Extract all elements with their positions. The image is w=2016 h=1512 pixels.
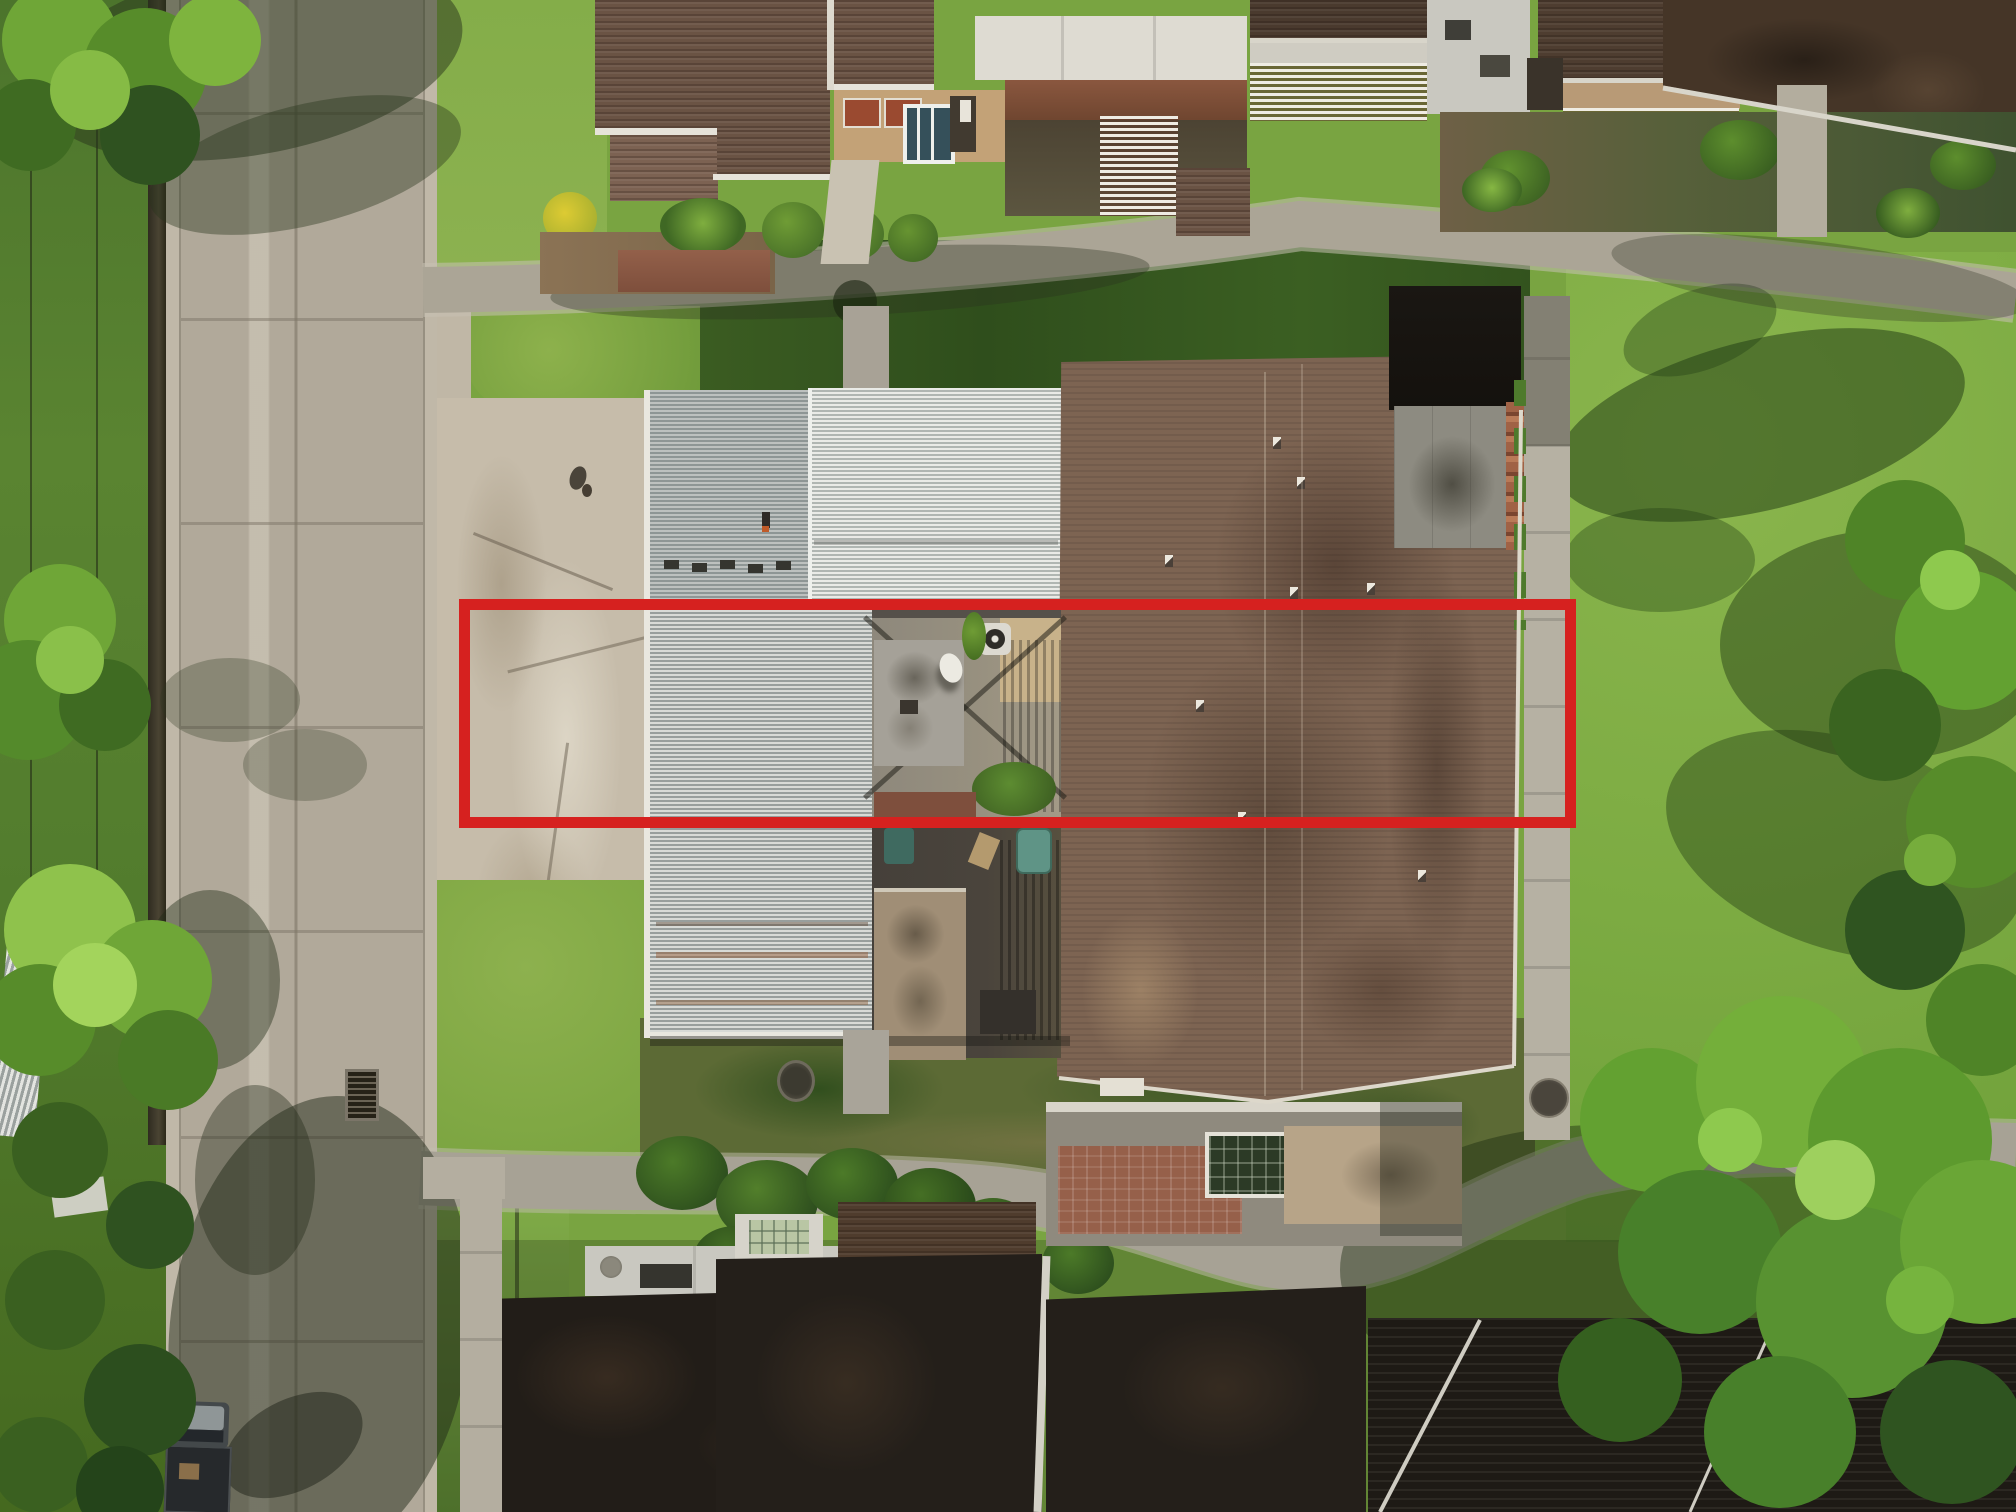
gutter — [713, 174, 833, 180]
chimney-tower-black — [1389, 286, 1521, 410]
bed-bush — [1930, 140, 1996, 190]
teal-car — [1016, 828, 1052, 874]
street-joint — [166, 318, 437, 321]
palm-plant — [1462, 168, 1522, 212]
front-bush — [762, 202, 824, 258]
grass-southwest — [437, 880, 659, 1170]
wood-fence — [148, 0, 166, 1145]
skylight-green-pane — [749, 1220, 809, 1254]
lounge-chair — [843, 98, 881, 128]
roof-vent — [1367, 583, 1375, 595]
street-joint — [166, 522, 437, 525]
street-joint — [166, 726, 437, 729]
roof-vent-figure-cap — [762, 526, 769, 532]
house-roof-topleft — [595, 0, 830, 132]
house-roof-mid-extension — [717, 130, 830, 176]
pickup-truck — [156, 1378, 261, 1512]
roof-vent-dash — [720, 560, 735, 569]
solar-panel — [640, 1264, 692, 1288]
house-roof-2 — [834, 0, 934, 86]
storm-drain — [345, 1069, 379, 1121]
left-garden-strip — [0, 0, 168, 1512]
tr-roof-a — [1250, 0, 1427, 40]
bed-bush — [1700, 120, 1780, 180]
rust-streak — [656, 922, 868, 926]
truck-cargo — [179, 1463, 200, 1480]
truck-roof — [172, 1405, 225, 1431]
rooftop-unit — [1480, 55, 1510, 77]
street-curb-left — [166, 0, 181, 1512]
glass-table-dark — [980, 990, 1036, 1034]
tr-white-band — [1250, 43, 1427, 63]
rooftop-ac — [600, 1256, 622, 1278]
skylight-grid-dark — [1205, 1132, 1289, 1198]
path-bush — [636, 1136, 728, 1210]
street-joint — [166, 930, 437, 933]
roof-streak — [814, 540, 1058, 545]
building-front-walk — [843, 306, 889, 394]
dog — [582, 484, 592, 497]
east-sidewalk-shade — [1524, 296, 1570, 446]
truck-windshield — [171, 1429, 223, 1443]
gutter — [595, 128, 717, 135]
house-lower-roof — [610, 135, 718, 201]
tr-flat-roof — [1427, 0, 1530, 114]
power-line — [30, 0, 32, 980]
bay-window — [903, 104, 955, 164]
grass-manhole — [777, 1060, 815, 1102]
rust-streak — [656, 952, 868, 958]
street-joint — [166, 1136, 437, 1139]
brick-bed-edge — [618, 250, 770, 292]
manhole-east-walk — [1529, 1078, 1569, 1118]
brown-band-central — [838, 1202, 1036, 1260]
courtyard-shade-right — [1380, 1102, 1462, 1236]
roof-vent-dash — [776, 561, 791, 570]
roof-divider — [827, 0, 834, 90]
stub-walk — [843, 1030, 889, 1114]
rust-streak — [656, 1000, 868, 1005]
tr-vertical-walk — [1777, 85, 1827, 237]
roof-vent-dash — [692, 563, 707, 572]
palm-plant — [660, 198, 746, 254]
pergola-slats — [1100, 116, 1178, 216]
palm-plant — [1876, 188, 1940, 238]
corrugated-roof-northeast — [812, 388, 1061, 608]
mini-brown-roof — [1176, 168, 1250, 236]
street-joint — [166, 112, 437, 115]
black-roof-central — [716, 1254, 1042, 1512]
black-roof-right — [1046, 1286, 1366, 1512]
chimney-cap-gray — [1394, 406, 1510, 548]
dark-doorway — [1527, 58, 1563, 110]
aerial-photo — [0, 0, 2016, 1512]
roof-vent — [1418, 870, 1426, 882]
roof-vent — [1165, 555, 1173, 567]
east-lawn — [1566, 252, 2016, 1242]
street-joint — [166, 1340, 437, 1343]
roof-vent — [1290, 587, 1298, 599]
roof-vent — [1273, 437, 1281, 449]
grass-tufts — [1514, 380, 1526, 630]
teal-bin — [884, 828, 914, 864]
entry-door — [960, 100, 971, 122]
property-outline-annotation — [459, 599, 1576, 828]
black-roof-farright — [1368, 1318, 2016, 1512]
street — [166, 0, 437, 1512]
vertical-walk — [460, 1198, 502, 1512]
power-line — [96, 0, 98, 980]
pergola-slats — [1250, 63, 1427, 121]
garage-flat-roof — [975, 16, 1247, 80]
front-bush — [888, 214, 938, 262]
t-sidewalk — [423, 1157, 505, 1199]
rooftop-unit — [1445, 20, 1471, 40]
roof-vent — [1297, 477, 1305, 489]
roof-vent-dash — [664, 560, 679, 569]
roof-vent-dash — [748, 564, 763, 573]
